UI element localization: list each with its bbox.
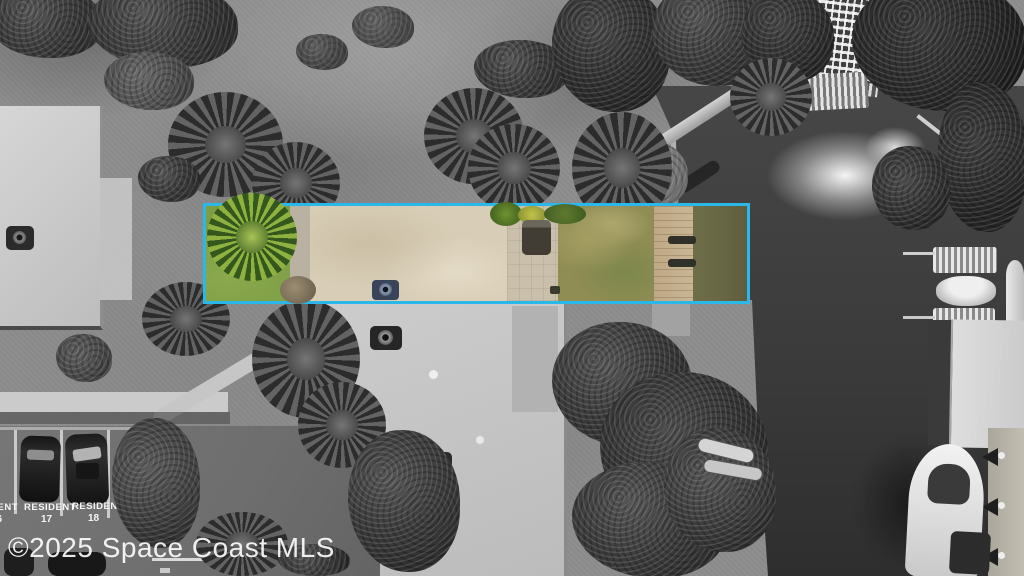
dock-post-shadow	[982, 448, 998, 466]
roof-vent-dot-2	[476, 436, 484, 444]
parked-car	[19, 435, 61, 502]
mls-watermark: ©2025 Space Coast MLS	[8, 532, 335, 564]
shrub	[296, 34, 348, 70]
aerial-photo-scene: RESIDENT 16 RESIDENT 17 RESIDENT 18	[0, 0, 1024, 576]
boat-stern-cover	[949, 531, 991, 575]
dock-post	[998, 502, 1005, 509]
finger-pier	[903, 316, 935, 319]
floating-dock-white	[933, 247, 997, 273]
left-building-roof	[0, 106, 103, 330]
boat-windshield	[927, 463, 971, 505]
lot-plants	[544, 204, 586, 224]
parking-spot-label: RESIDENT	[0, 502, 18, 513]
finger-pier	[903, 252, 935, 255]
roof-gravel-patch	[512, 306, 558, 412]
dock-post	[998, 552, 1005, 559]
dock-cleat	[668, 236, 696, 244]
parking-spot-number: 16	[0, 514, 2, 525]
parking-spot-label: RESIDENT	[24, 502, 76, 513]
walkway-north	[100, 178, 132, 300]
lot-grill	[522, 220, 551, 255]
dock-post-shadow	[982, 498, 998, 516]
lot-roof-tan	[310, 206, 507, 301]
jetski-pair	[936, 276, 996, 306]
lot-water-olive	[693, 206, 747, 301]
lot-palm-tree	[207, 193, 297, 281]
lot-wood-dock	[654, 206, 693, 301]
lot-stone-knob	[280, 276, 316, 304]
car-sunroof	[76, 463, 99, 479]
hedge-row	[0, 412, 230, 424]
parking-stripe-tick	[160, 568, 170, 573]
rooftop-ac-fan	[13, 231, 26, 244]
dock-cleat	[668, 259, 696, 267]
palm-tree	[468, 124, 560, 212]
car-windshield	[27, 450, 54, 461]
highlighted-lot-boundary	[203, 203, 750, 304]
dock-post	[998, 452, 1005, 459]
shrub	[138, 156, 200, 202]
roof-ac-fan-1	[378, 330, 393, 345]
parking-spot-number: 18	[88, 513, 99, 524]
parking-spot-number: 17	[41, 514, 52, 525]
lot-ac-fan	[379, 283, 392, 296]
palm-tree	[730, 58, 812, 136]
roof-vent-dot-1	[429, 370, 438, 379]
lot-small-object	[550, 286, 560, 294]
shrub	[352, 6, 414, 48]
garden-bush	[56, 334, 112, 382]
